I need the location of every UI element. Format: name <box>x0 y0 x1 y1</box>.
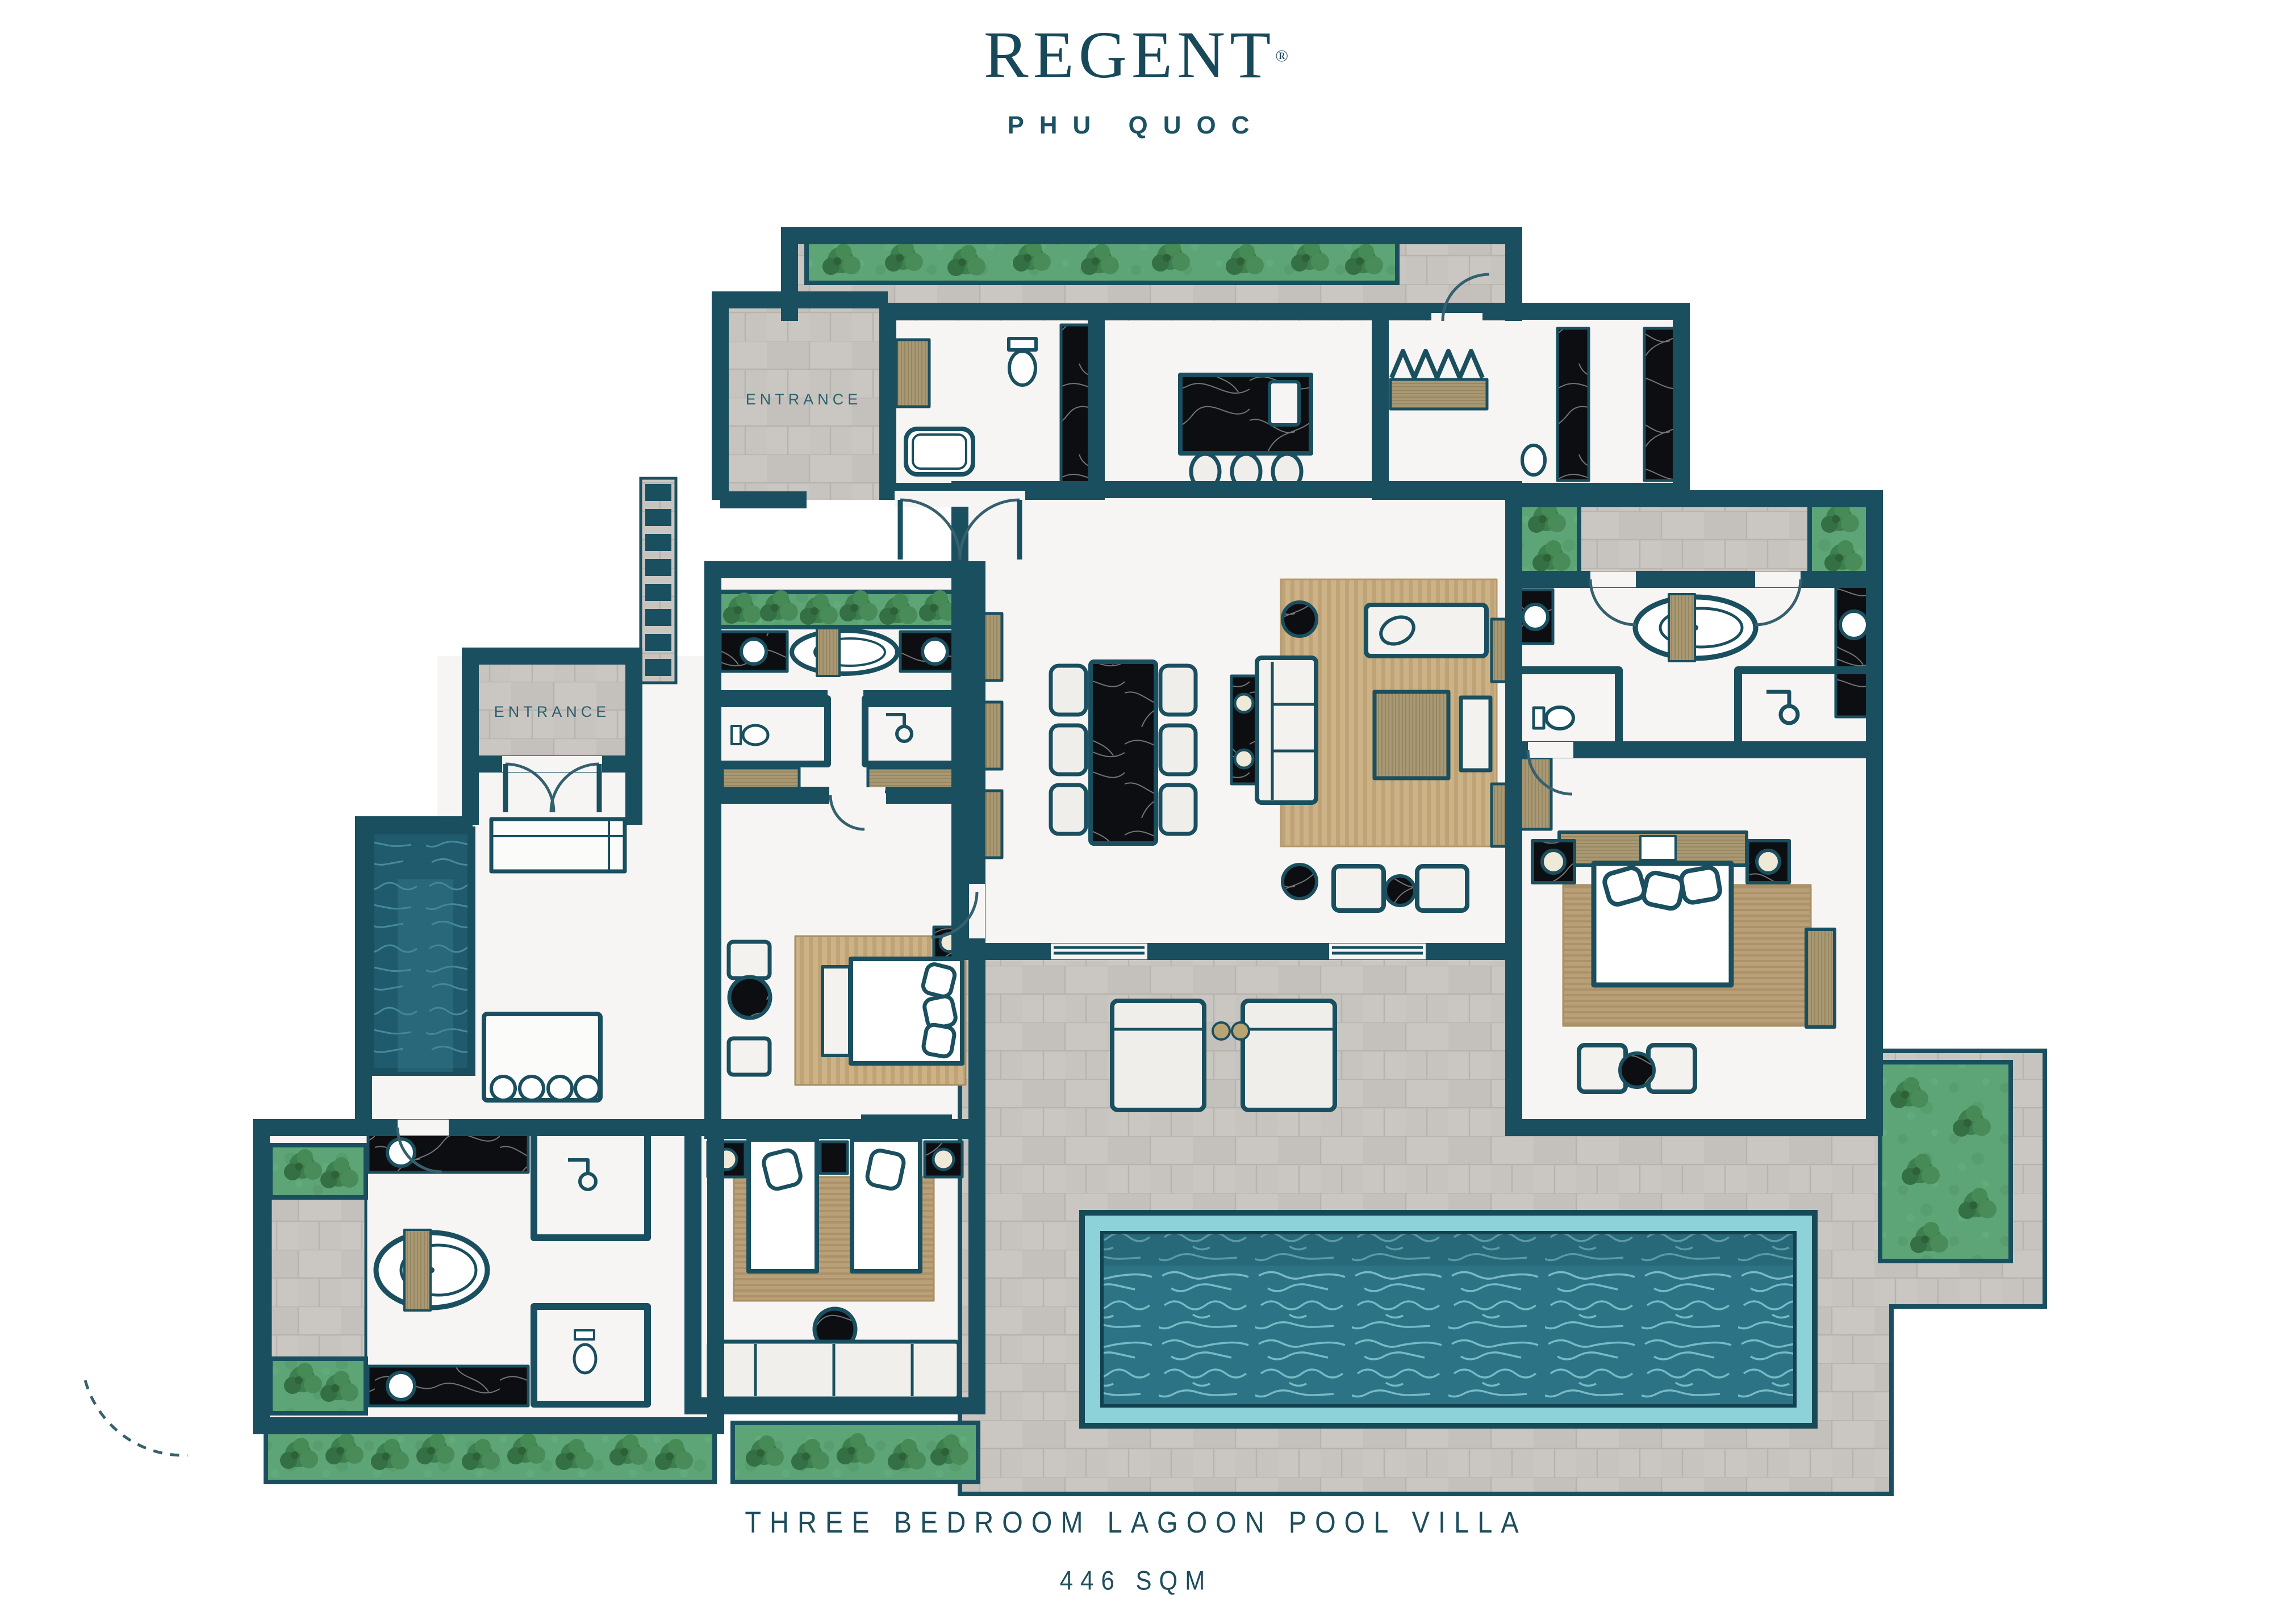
sofa <box>1257 658 1316 803</box>
side-table <box>1283 602 1317 636</box>
side-table <box>729 977 770 1018</box>
armchair <box>1334 866 1384 911</box>
garden-path <box>270 1197 366 1359</box>
courtyard-terrace <box>1579 500 1810 578</box>
main-pool <box>1082 1213 1815 1426</box>
side-table <box>1283 865 1317 899</box>
toilet-icon <box>1009 339 1036 385</box>
toilet-icon <box>1522 445 1545 475</box>
toilet-icon <box>574 1345 596 1373</box>
closet <box>1390 379 1487 409</box>
entrance-label-upper: ENTRANCE <box>746 391 862 408</box>
nightstand <box>708 1142 962 1177</box>
armchair <box>1417 866 1467 911</box>
tub-bench <box>817 628 840 676</box>
entrance-label-lower: ENTRANCE <box>494 703 611 720</box>
plan-area: 446 SQM <box>0 1565 2272 1596</box>
console-table <box>1461 698 1490 770</box>
daybed <box>484 1014 600 1100</box>
armchair <box>729 1038 770 1075</box>
bathtub-oval <box>792 631 897 674</box>
lagoon-pool <box>370 830 471 1072</box>
side-table <box>1385 876 1415 905</box>
deck-table <box>1213 1022 1230 1039</box>
plan-title: THREE BEDROOM LAGOON POOL VILLA <box>0 1505 2272 1540</box>
coffee-table <box>1375 692 1448 778</box>
tub-bench <box>1669 594 1695 661</box>
floor-plan: ENTRANCE ENTRANCE <box>0 0 2272 1624</box>
chaise-lounge <box>1366 605 1486 656</box>
dining-table <box>1091 662 1156 844</box>
kitchen <box>1180 375 1311 489</box>
kitchen-sink <box>1269 382 1299 425</box>
toilet-icon <box>743 725 768 745</box>
dining-set <box>1051 662 1196 844</box>
tub-bench <box>404 1230 431 1310</box>
twin-bedroom <box>708 1139 962 1398</box>
pillows <box>921 963 957 1058</box>
footer: THREE BEDROOM LAGOON POOL VILLA 446 SQM <box>0 1506 2272 1594</box>
side-table <box>1620 1053 1654 1087</box>
closet <box>491 819 625 871</box>
marble-column <box>1557 328 1589 481</box>
sofa-bench <box>709 1342 959 1398</box>
toilet-icon <box>1546 707 1573 729</box>
luggage-bench <box>1806 929 1835 1027</box>
stepping-stone-path <box>641 478 676 683</box>
deck-table <box>1232 1022 1249 1039</box>
armchair <box>729 942 770 978</box>
closet <box>1520 758 1551 829</box>
cabinet <box>896 340 929 407</box>
bed-bench <box>822 967 850 1055</box>
